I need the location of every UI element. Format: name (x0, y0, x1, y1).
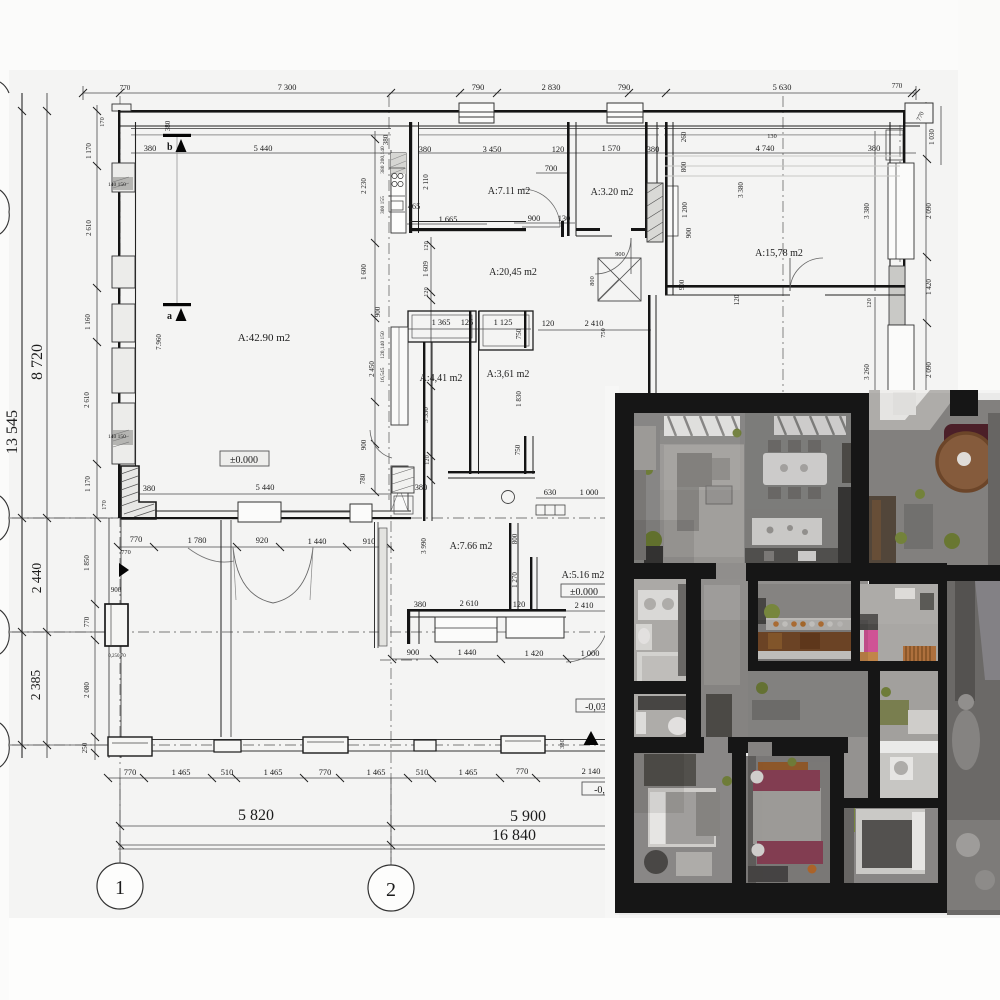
svg-text:2 610: 2 610 (83, 392, 91, 408)
svg-text:3 380: 3 380 (737, 182, 745, 198)
svg-text:2 230: 2 230 (360, 178, 368, 194)
svg-text:3 990: 3 990 (420, 538, 428, 554)
svg-text:2 410: 2 410 (575, 601, 594, 610)
svg-text:1 440: 1 440 (458, 648, 477, 657)
svg-text:1 465: 1 465 (367, 768, 386, 777)
svg-text:2 410: 2 410 (585, 319, 604, 328)
svg-text:2 385: 2 385 (28, 670, 43, 701)
svg-text:1 170: 1 170 (85, 143, 93, 159)
svg-text:380: 380 (868, 144, 881, 153)
svg-text:A:4,41 m2: A:4,41 m2 (420, 373, 463, 384)
svg-text:910: 910 (363, 537, 376, 546)
svg-text:1 200: 1 200 (681, 202, 689, 218)
svg-text:1 465: 1 465 (172, 768, 191, 777)
svg-text:260: 260 (680, 131, 688, 142)
svg-text:1 125: 1 125 (494, 318, 513, 327)
svg-text:4 740: 4 740 (756, 144, 775, 153)
svg-text:170: 170 (99, 117, 106, 126)
svg-text:A:3.20 m2: A:3.20 m2 (591, 187, 634, 198)
svg-text:465: 465 (408, 202, 421, 211)
svg-text:250: 250 (81, 742, 89, 753)
svg-text:A:42.90 m2: A:42.90 m2 (238, 332, 291, 344)
svg-text:770: 770 (124, 768, 137, 777)
svg-text:770: 770 (130, 535, 143, 544)
svg-text:1 465: 1 465 (264, 768, 283, 777)
svg-text:2 450: 2 450 (368, 361, 376, 377)
svg-text:2 440: 2 440 (29, 563, 44, 594)
svg-text:770: 770 (120, 84, 131, 92)
svg-text:790: 790 (472, 83, 485, 92)
svg-text:130: 130 (767, 133, 776, 140)
svg-text:120: 120 (552, 145, 565, 154)
svg-text:120: 120 (542, 319, 555, 328)
svg-text:120: 120 (866, 298, 873, 307)
svg-text:1 600: 1 600 (360, 264, 368, 280)
svg-text:120: 120 (733, 294, 741, 305)
svg-text:900: 900 (407, 648, 420, 657)
svg-text:380: 380 (143, 484, 156, 493)
svg-text:5 630: 5 630 (773, 83, 792, 92)
svg-text:120,140 150: 120,140 150 (380, 331, 386, 359)
svg-text:130: 130 (558, 214, 571, 223)
svg-text:750: 750 (600, 328, 607, 337)
svg-text:5 900: 5 900 (510, 808, 546, 825)
svg-text:2 110: 2 110 (422, 174, 430, 190)
svg-text:380: 380 (414, 600, 427, 609)
svg-text:0,250,70: 0,250,70 (108, 654, 126, 659)
svg-text:1 609: 1 609 (422, 261, 430, 277)
svg-text:900: 900 (528, 214, 541, 223)
svg-text:900: 900 (374, 306, 382, 317)
svg-text:900: 900 (685, 227, 693, 238)
svg-text:1 850: 1 850 (83, 555, 91, 571)
svg-text:140 150: 140 150 (108, 182, 126, 188)
svg-text:1 000: 1 000 (580, 488, 599, 497)
svg-text:13 545: 13 545 (4, 410, 21, 454)
svg-text:1 440: 1 440 (308, 537, 327, 546)
svg-text:380: 380 (559, 739, 566, 748)
svg-text:900: 900 (111, 586, 122, 594)
svg-text:920: 920 (256, 536, 269, 545)
svg-text:1 030: 1 030 (928, 129, 936, 145)
svg-text:750: 750 (515, 328, 523, 339)
svg-text:120: 120 (513, 600, 526, 609)
svg-text:2 830: 2 830 (542, 83, 561, 92)
svg-text:2 610: 2 610 (85, 220, 93, 236)
svg-text:b: b (167, 142, 173, 153)
svg-text:1 780: 1 780 (188, 536, 207, 545)
svg-text:5 440: 5 440 (256, 483, 275, 492)
svg-text:380: 380 (382, 134, 390, 145)
svg-text:120: 120 (423, 287, 430, 296)
svg-text:16,545: 16,545 (380, 367, 386, 382)
svg-text:1 160: 1 160 (84, 314, 92, 330)
svg-text:800: 800 (589, 276, 596, 285)
svg-text:±0.000: ±0.000 (230, 455, 258, 466)
svg-text:300 155: 300 155 (380, 196, 386, 214)
svg-text:1 365: 1 365 (432, 318, 451, 327)
svg-text:2: 2 (386, 879, 396, 901)
svg-text:A:7.66 m2: A:7.66 m2 (450, 541, 493, 552)
svg-text:380: 380 (419, 145, 432, 154)
svg-text:A:7.11 m2: A:7.11 m2 (488, 186, 530, 197)
svg-text:120: 120 (424, 455, 431, 464)
svg-text:a: a (167, 311, 172, 322)
svg-text:1 830: 1 830 (515, 391, 523, 407)
svg-text:1 665: 1 665 (439, 215, 458, 224)
svg-text:770: 770 (892, 82, 903, 90)
svg-text:A:3,61 m2: A:3,61 m2 (487, 369, 530, 380)
svg-text:770: 770 (319, 768, 332, 777)
svg-text:1 420: 1 420 (925, 279, 933, 295)
svg-text:125: 125 (461, 318, 474, 327)
svg-text:380: 380 (415, 483, 428, 492)
svg-text:380: 380 (164, 120, 172, 131)
svg-text:2 080: 2 080 (83, 682, 91, 698)
svg-text:780: 780 (359, 473, 367, 484)
svg-text:380: 380 (647, 145, 660, 154)
svg-text:7 300: 7 300 (278, 83, 297, 92)
svg-text:1 570: 1 570 (602, 144, 621, 153)
svg-text:630: 630 (544, 488, 557, 497)
svg-text:770: 770 (121, 549, 130, 556)
svg-text:750: 750 (514, 444, 522, 455)
svg-text:3 380: 3 380 (863, 203, 871, 219)
svg-text:1 170: 1 170 (84, 476, 92, 492)
svg-text:770: 770 (83, 616, 91, 627)
svg-text:3 330: 3 330 (422, 407, 430, 423)
svg-text:16 840: 16 840 (492, 827, 536, 844)
svg-text:A:15,78 m2: A:15,78 m2 (755, 248, 803, 259)
svg-text:380 200,140: 380 200,140 (380, 146, 386, 174)
svg-text:2 090: 2 090 (925, 362, 933, 378)
svg-text:8 720: 8 720 (29, 344, 46, 380)
svg-text:3 260: 3 260 (863, 364, 871, 380)
svg-text:1 000: 1 000 (581, 649, 600, 658)
svg-text:±0.000: ±0.000 (570, 587, 598, 598)
svg-text:2 610: 2 610 (460, 599, 479, 608)
svg-text:170: 170 (101, 500, 108, 509)
svg-text:700: 700 (545, 164, 558, 173)
svg-text:5 440: 5 440 (254, 144, 273, 153)
svg-text:900: 900 (678, 279, 686, 290)
svg-text:800: 800 (511, 533, 519, 544)
svg-text:7.960: 7.960 (155, 334, 163, 350)
svg-text:1: 1 (115, 877, 125, 899)
svg-text:2 090: 2 090 (925, 203, 933, 219)
svg-text:2 140: 2 140 (582, 767, 601, 776)
svg-text:380: 380 (144, 144, 157, 153)
svg-text:800: 800 (680, 161, 688, 172)
svg-text:120: 120 (423, 241, 430, 250)
svg-text:3 450: 3 450 (483, 145, 502, 154)
svg-text:790: 790 (618, 83, 631, 92)
svg-text:510: 510 (416, 768, 429, 777)
svg-text:1 465: 1 465 (459, 768, 478, 777)
svg-text:510: 510 (221, 768, 234, 777)
svg-text:A:5.16 m2: A:5.16 m2 (562, 570, 605, 581)
svg-text:A:20,45 m2: A:20,45 m2 (489, 267, 537, 278)
svg-text:5 820: 5 820 (238, 807, 274, 824)
svg-text:900: 900 (615, 251, 624, 258)
svg-text:1 270: 1 270 (511, 572, 519, 588)
svg-text:900: 900 (360, 439, 368, 450)
svg-text:1 420: 1 420 (525, 649, 544, 658)
svg-text:770: 770 (516, 767, 529, 776)
svg-text:140 150: 140 150 (108, 434, 126, 440)
